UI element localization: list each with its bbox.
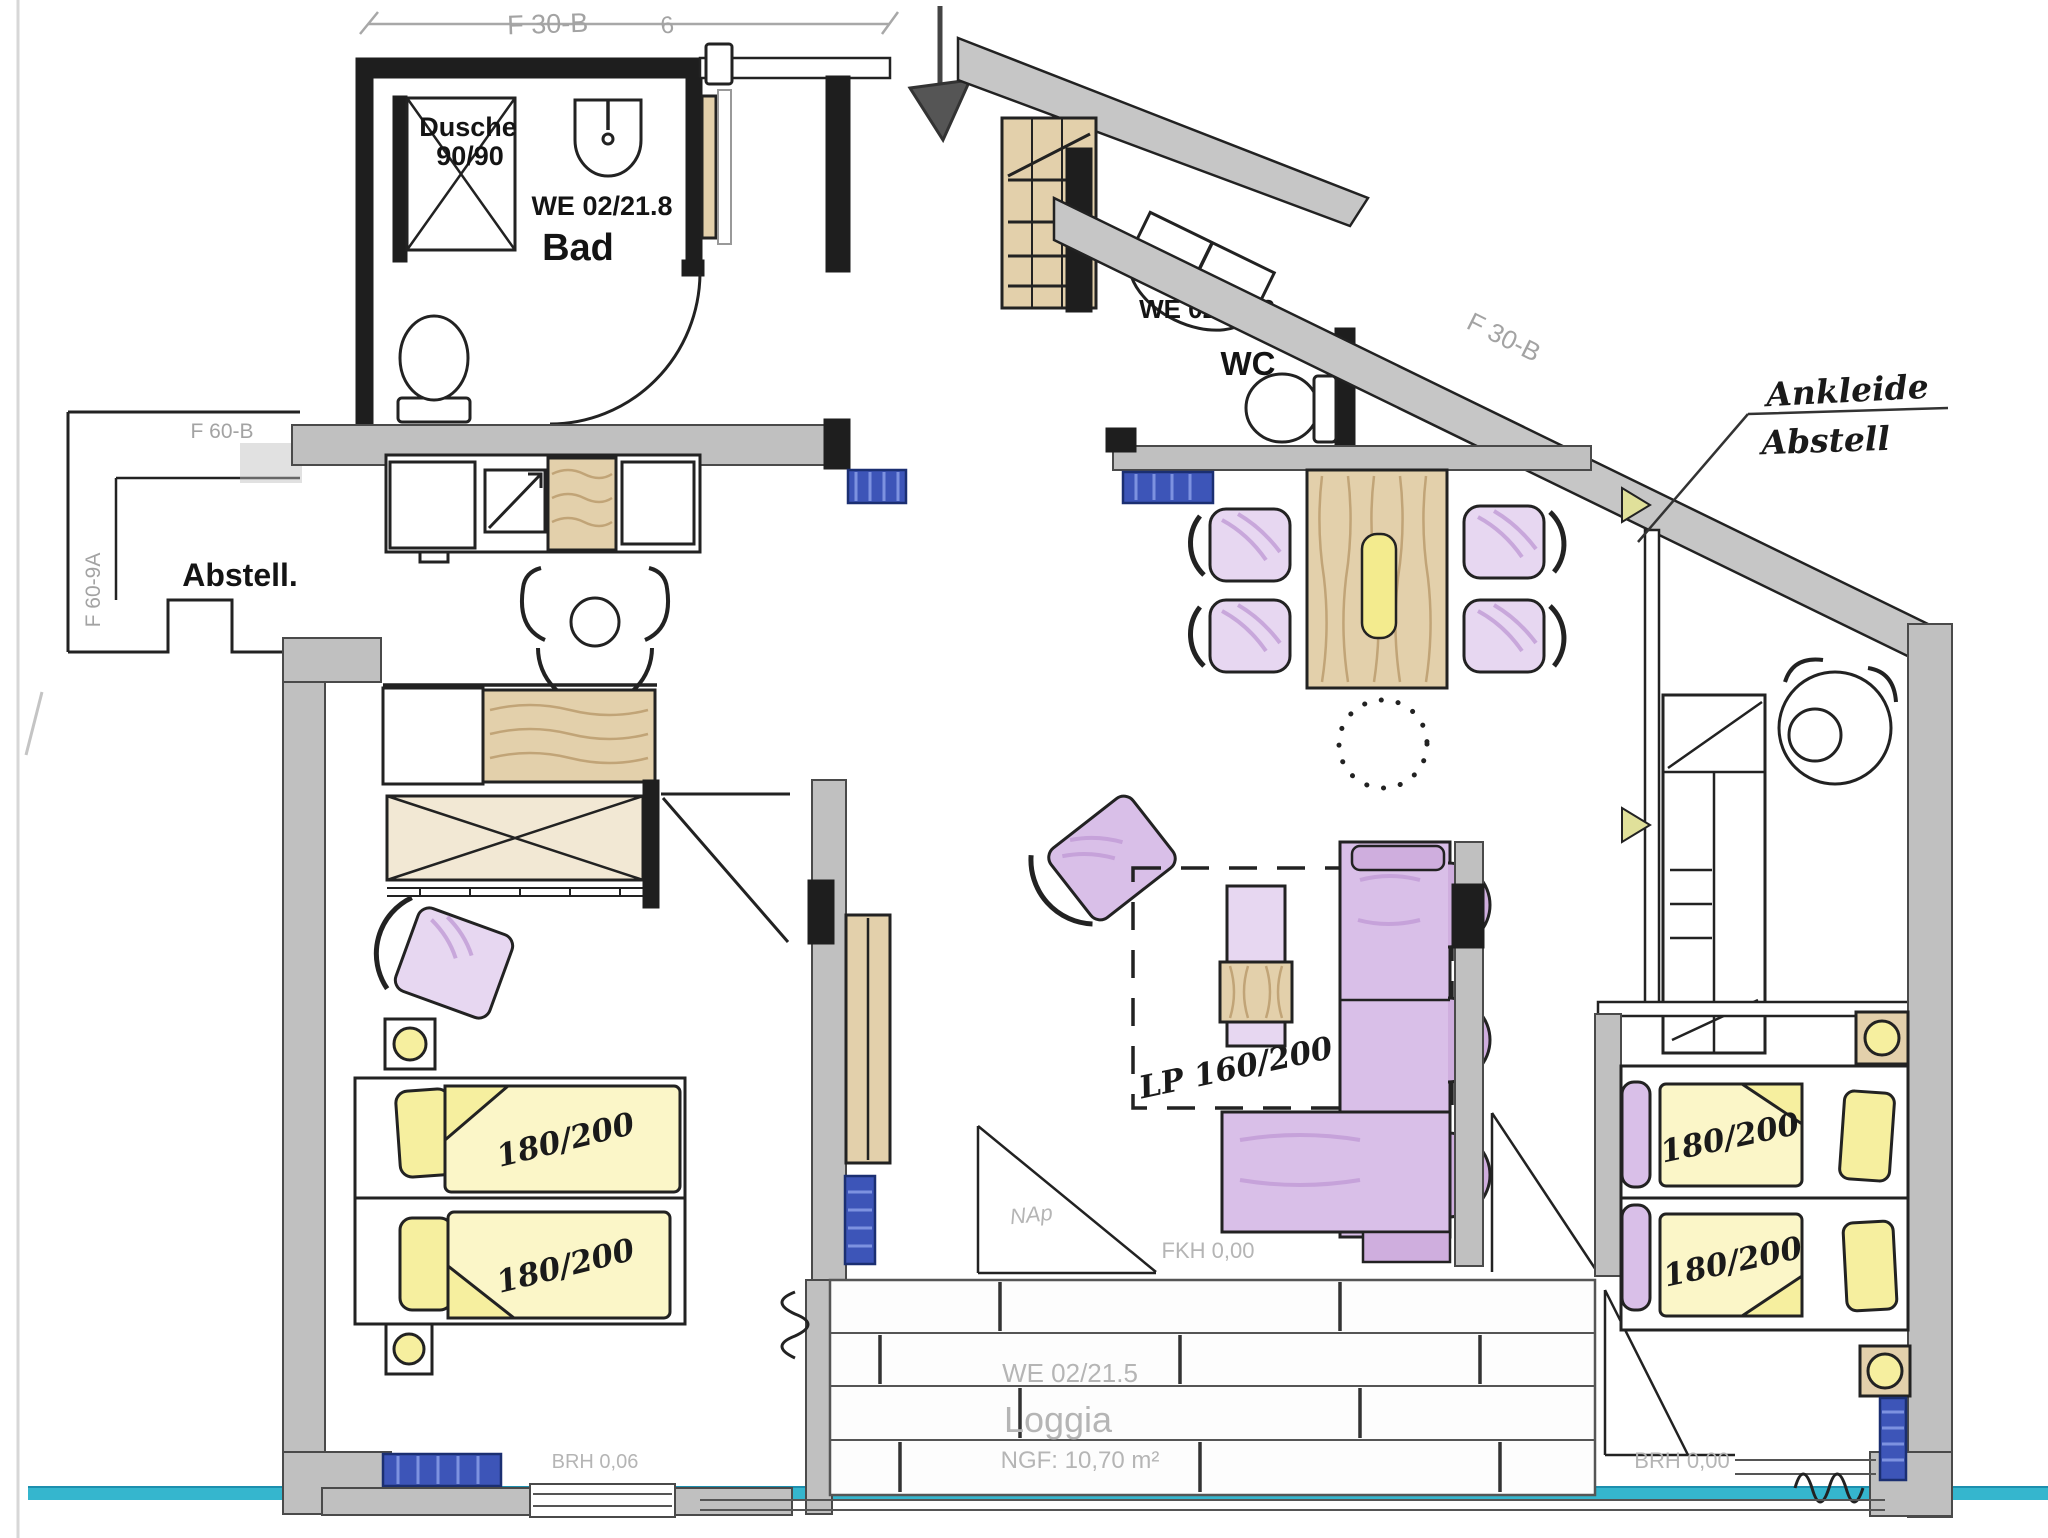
lamp: [394, 1028, 426, 1060]
shower-label-2: 90/90: [436, 141, 504, 171]
pendant-lamp-dotted: [1339, 700, 1427, 788]
table-runner: [1362, 534, 1396, 638]
entry-wall: [826, 76, 850, 272]
wall-jog: [283, 638, 381, 682]
slope-wall-label: F 30-B: [1462, 306, 1545, 368]
pillow: [1839, 1090, 1895, 1181]
radiator: [383, 1454, 501, 1486]
loggia-room-label: Loggia: [1004, 1399, 1113, 1440]
bathroom-unit-label: WE 02/21.8: [531, 191, 672, 221]
floorplan-page: F 30-B 6 F 60-B F 60-9A Abstell. Dusche …: [0, 0, 2048, 1538]
bathroom-window: [702, 96, 716, 238]
loggia-side-wall: [806, 1280, 832, 1514]
bedroom-right-wall-left: [1595, 1014, 1621, 1276]
bathroom-wall-right: [686, 78, 702, 268]
dining-wall: [1113, 446, 1591, 470]
door-swing-loggia: [978, 1126, 1156, 1273]
desk-left: [383, 688, 483, 784]
dining-chair: [1191, 509, 1290, 581]
dressing-chair: [1779, 659, 1896, 784]
wc-toilet-tank: [1314, 376, 1336, 442]
room-living: LP 160/200 NAp FKH 0,00: [978, 785, 1596, 1273]
room-dressing: Ankleide Abstell: [1598, 367, 1948, 1053]
dining-chair: [1191, 600, 1290, 672]
lamp: [1865, 1021, 1899, 1055]
storage-wall-label: F 60-B: [190, 420, 253, 443]
door-jamb: [824, 419, 850, 469]
dim-mark: 6: [659, 11, 675, 39]
dining-chair: [1464, 600, 1564, 672]
kitchen: [292, 419, 906, 562]
parapet-height-right: BRH 0,00: [1634, 1448, 1729, 1473]
pencil-note: NAp: [1009, 1200, 1054, 1229]
bedroom-left-door-swing: [661, 794, 790, 942]
dressing-note-1: Ankleide: [1762, 367, 1929, 415]
dressing-wall-left: [1645, 530, 1659, 1008]
bed-throw: [1622, 1082, 1650, 1187]
desk: [383, 685, 657, 784]
bathroom-window-outer: [718, 90, 731, 244]
lamp: [394, 1334, 424, 1364]
washbasin-drain: [603, 134, 613, 144]
bathroom-room-label: Bad: [542, 227, 614, 269]
door-jamb: [682, 260, 704, 276]
storage-side-wall-label: F 60-9A: [82, 553, 105, 628]
bedroom-left-wall: [283, 638, 325, 1514]
sofa-chaise: [1222, 1112, 1450, 1232]
bathroom-wall-left: [356, 58, 373, 426]
shower-label-1: Dusche: [419, 112, 517, 142]
kitchen-stove: [622, 462, 694, 544]
dressing-shelf: [1663, 695, 1765, 1053]
deck-edge: [700, 1500, 1885, 1510]
storage-room-label: Abstell.: [182, 557, 298, 593]
desk-wood: [483, 690, 655, 782]
shower-partition: [393, 96, 407, 262]
room-wc: WE 02/21.2 WC: [958, 38, 1368, 450]
pencil-mark: [26, 692, 42, 755]
cabinet-handle: [420, 552, 448, 562]
window: [530, 1484, 675, 1517]
loggia-area-label: NGF: 10,70 m²: [1001, 1447, 1160, 1474]
dressing-note-2: Abstell: [1758, 419, 1891, 463]
door-swing-corridor: [1492, 1113, 1596, 1272]
radiator: [845, 1176, 875, 1264]
pillow: [1843, 1221, 1898, 1311]
parapet-height-left: BRH 0,06: [552, 1451, 639, 1473]
door-jamb: [1106, 428, 1136, 452]
kitchen-cabinet: [390, 462, 475, 548]
armchair: [363, 892, 517, 1025]
curtain: [782, 1292, 808, 1358]
outer-wall-right: [1908, 624, 1952, 1517]
radiator: [1880, 1398, 1906, 1480]
bathroom-wall-top: [358, 58, 702, 78]
floor-height-note: FKH 0,00: [1162, 1238, 1255, 1263]
toilet-bowl: [400, 316, 468, 400]
door-jamb: [643, 780, 659, 908]
floorplan-drawing: F 30-B 6 F 60-B F 60-9A Abstell. Dusche …: [0, 0, 2048, 1538]
wall-niche: [706, 44, 732, 84]
bed-throw: [1622, 1205, 1650, 1310]
room-bathroom: Dusche 90/90 WE 02/21.8 Bad: [356, 44, 890, 426]
armchair: [1018, 785, 1180, 941]
window: [1735, 1460, 1876, 1474]
wc-toilet-bowl: [1246, 374, 1318, 442]
door-jamb: [1452, 884, 1484, 948]
lamp: [1868, 1354, 1902, 1388]
loggia-deck: [830, 1280, 1595, 1495]
dim-label-f30b-top: F 30-B: [507, 8, 589, 41]
wc-room-label: WC: [1221, 345, 1276, 382]
dining-chair: [1464, 506, 1564, 578]
toilet-tank: [398, 398, 470, 422]
top-dimension: F 30-B 6: [360, 8, 898, 41]
loggia-unit-label: WE 02/21.5: [1002, 1358, 1138, 1388]
bedroom-left-wall-right: [812, 780, 846, 1280]
room-storage: F 60-B F 60-9A Abstell.: [68, 412, 302, 652]
door-jamb: [808, 880, 834, 944]
pillow: [400, 1218, 452, 1310]
dining-set: [1191, 470, 1564, 788]
bathroom-door-swing: [550, 274, 700, 424]
